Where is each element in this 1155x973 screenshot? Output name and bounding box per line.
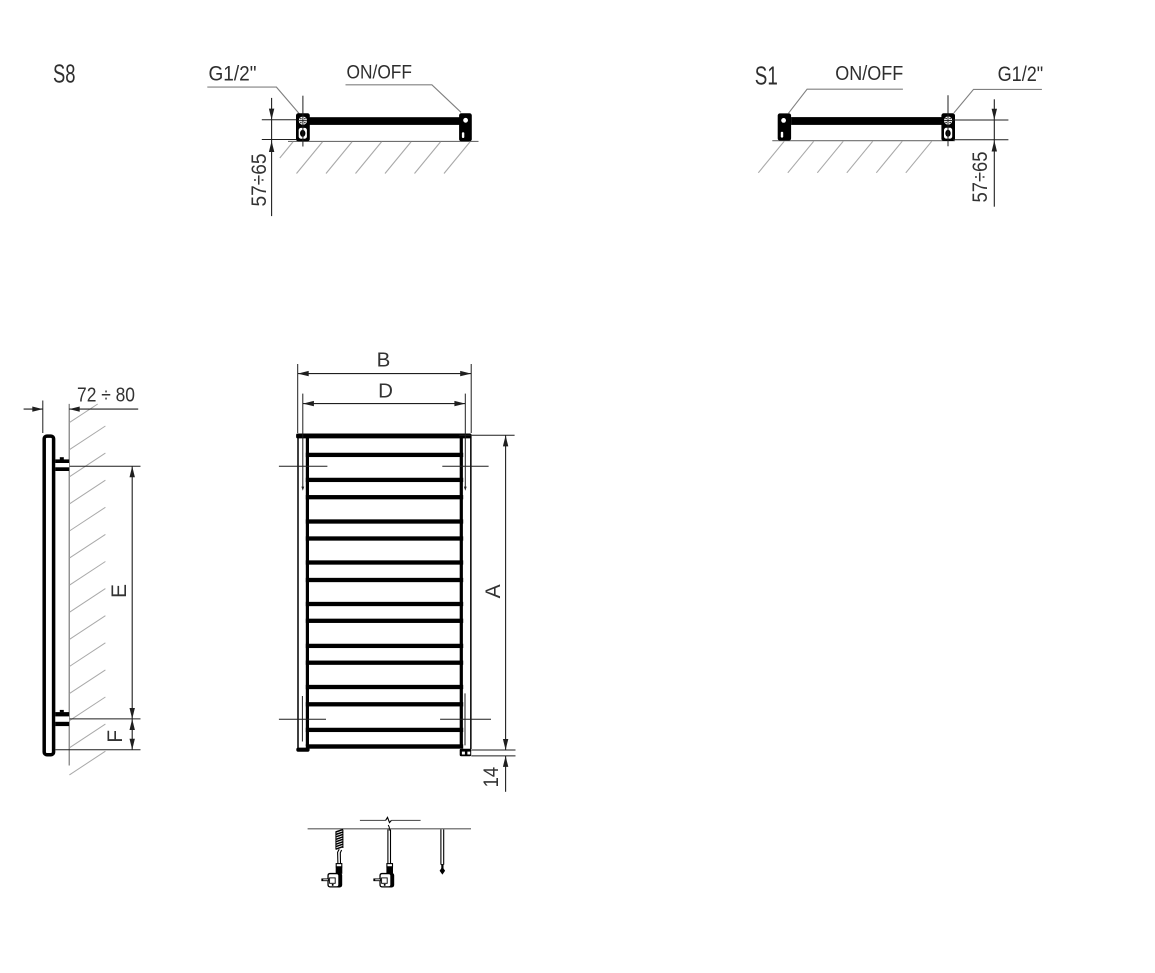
svg-text:A: A xyxy=(482,584,505,598)
svg-text:G1/2": G1/2" xyxy=(209,63,257,86)
svg-text:G1/2": G1/2" xyxy=(998,63,1044,86)
svg-text:S8: S8 xyxy=(53,58,76,88)
svg-text:F: F xyxy=(104,730,127,743)
svg-text:57÷65: 57÷65 xyxy=(968,151,992,202)
svg-text:E: E xyxy=(108,584,131,598)
svg-text:14: 14 xyxy=(480,767,503,788)
svg-text:ON/OFF: ON/OFF xyxy=(835,62,903,85)
svg-text:D: D xyxy=(378,379,393,402)
svg-text:ON/OFF: ON/OFF xyxy=(347,62,413,84)
svg-text:72 ÷ 80: 72 ÷ 80 xyxy=(77,384,135,406)
svg-text:S1: S1 xyxy=(755,63,778,91)
svg-text:57÷65: 57÷65 xyxy=(247,153,271,206)
svg-text:B: B xyxy=(377,348,391,371)
